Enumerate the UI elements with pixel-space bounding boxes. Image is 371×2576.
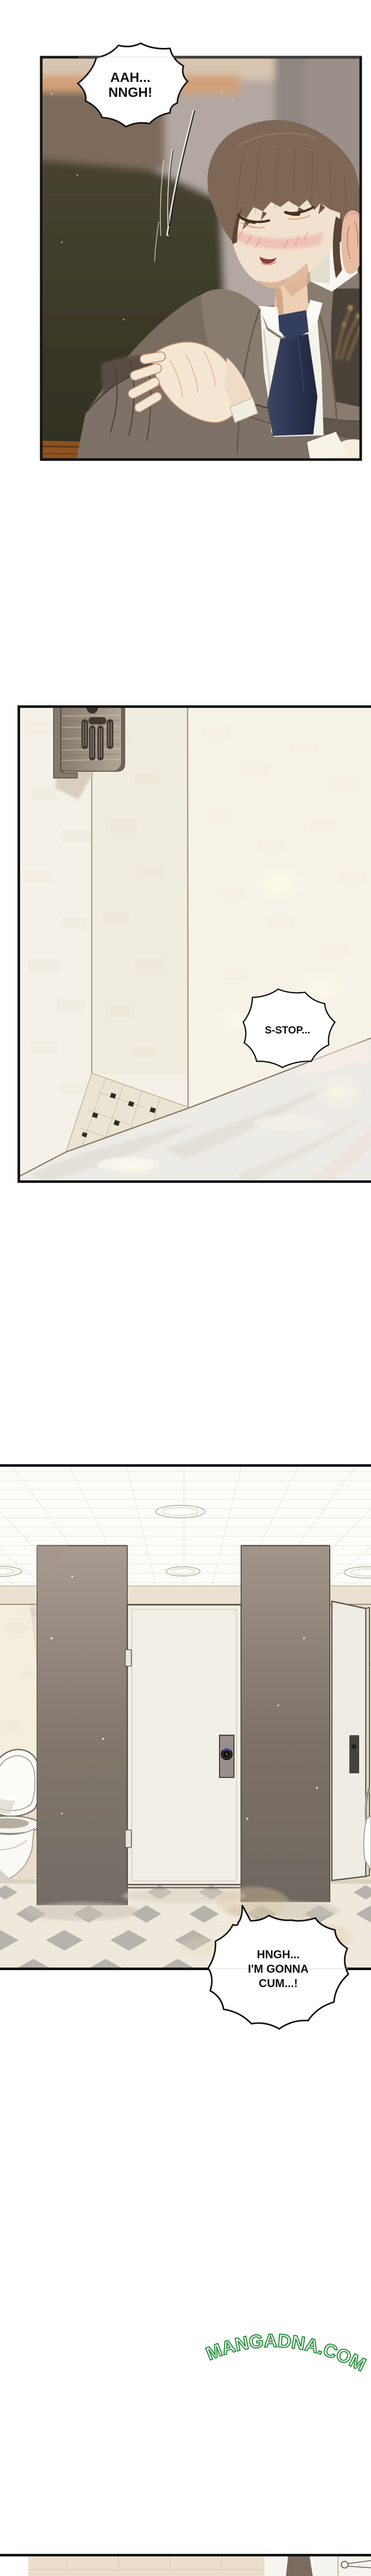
svg-text:HNGH...: HNGH...	[257, 1948, 299, 1961]
svg-text:AAH...: AAH...	[110, 70, 150, 85]
svg-text:CUM...!: CUM...!	[259, 1977, 298, 1990]
svg-text:MANGADNA.COM: MANGADNA.COM	[203, 2330, 369, 2375]
svg-text:I'M GONNA: I'M GONNA	[248, 1962, 309, 1975]
svg-text:S-STOP...: S-STOP...	[265, 1025, 310, 1036]
svg-text:NNGH!: NNGH!	[108, 84, 152, 100]
